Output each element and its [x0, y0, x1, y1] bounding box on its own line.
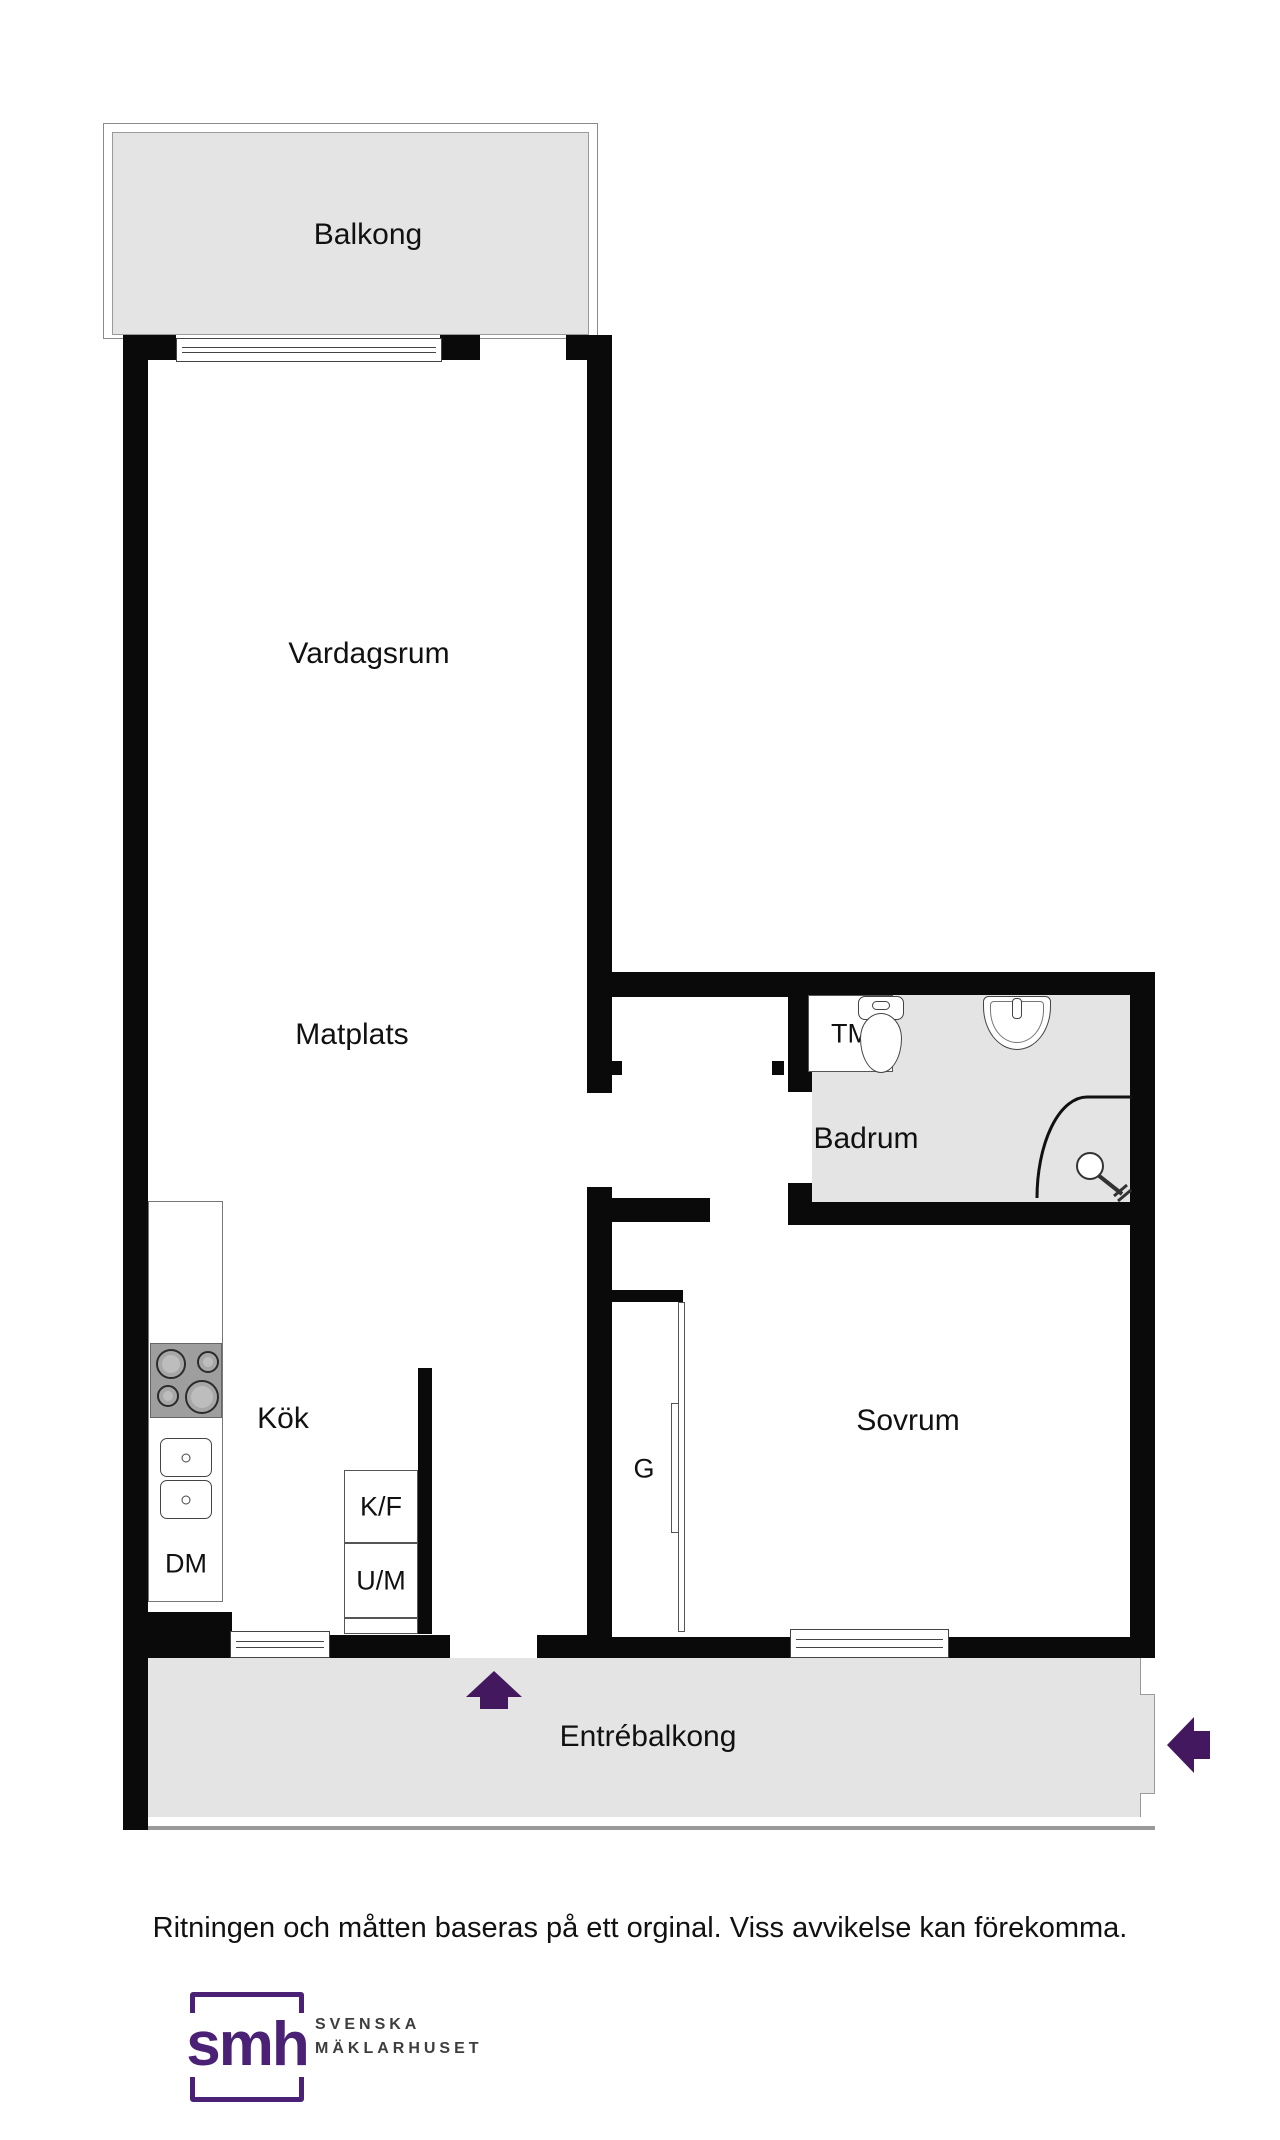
wall-fridge-side	[418, 1368, 432, 1634]
wall-closet-stub	[610, 1290, 683, 1302]
window-pane	[182, 347, 436, 354]
drawer-knob	[182, 1495, 191, 1504]
floor-plan: Balkong TM Badrum	[0, 0, 1280, 2140]
shower-corner-icon	[1030, 1090, 1135, 1205]
burner	[197, 1351, 219, 1373]
wall-bottom-b	[330, 1635, 450, 1658]
balcony-notch	[1140, 1658, 1155, 1695]
wardrobe-front-line	[678, 1302, 685, 1632]
room-label-matplats: Matplats	[295, 1018, 408, 1052]
kitchen-drawer	[160, 1480, 212, 1519]
wall-bottom-a	[123, 1612, 232, 1658]
smh-logo-monogram: smh	[185, 2013, 309, 2077]
room-label-balkong: Balkong	[314, 218, 422, 252]
burner	[157, 1385, 179, 1407]
oven-micro-label: U/M	[356, 1565, 406, 1596]
disclaimer-text: Ritningen och måtten baseras på ett orgi…	[0, 1912, 1280, 1945]
wall-bottom-d	[610, 1637, 790, 1658]
fridge-freezer-box: K/F	[344, 1470, 418, 1543]
window-pane	[796, 1639, 943, 1647]
sink-faucet	[1012, 998, 1022, 1019]
wall-bathroom-top	[587, 972, 1155, 997]
wall-right-exterior	[1130, 972, 1155, 1658]
wall-top-corner	[123, 335, 176, 360]
cabinet-box	[344, 1618, 418, 1634]
room-label-kok: Kök	[257, 1402, 309, 1436]
balcony-notch	[1140, 1793, 1155, 1817]
toilet-flush-button	[872, 1001, 890, 1010]
bedroom-window	[790, 1629, 949, 1658]
balcony-railing-line	[148, 1826, 1155, 1830]
livingroom-window	[176, 338, 442, 362]
fridge-freezer-label: K/F	[360, 1491, 402, 1522]
room-label-entrebalkong: Entrébalkong	[560, 1720, 737, 1754]
wall-bottom-c	[537, 1635, 612, 1658]
room-label-vardagsrum: Vardagsrum	[288, 637, 449, 671]
kitchen-drawer	[160, 1438, 212, 1477]
window-pane	[236, 1641, 324, 1649]
wall-bedroom-top-left	[610, 1198, 710, 1222]
left-arrow-entrance-stem	[1193, 1731, 1210, 1759]
dishwasher-label: DM	[165, 1549, 207, 1580]
oven-micro-box: U/M	[344, 1543, 418, 1618]
left-arrow-entrance-icon	[1167, 1717, 1194, 1773]
up-arrow-entrance-icon	[466, 1671, 522, 1697]
kitchen-window	[230, 1631, 330, 1658]
wall-top-mid	[440, 335, 480, 360]
wall-bottom-e	[949, 1637, 1155, 1658]
wall-hall-lower	[587, 1187, 612, 1658]
room-label-sovrum: Sovrum	[856, 1404, 959, 1438]
wall-jamb-hall	[610, 1061, 622, 1075]
wall-left-exterior	[123, 335, 148, 1830]
logo-word-maklarhuset: MÄKLARHUSET	[315, 2040, 483, 2058]
room-label-badrum: Badrum	[813, 1122, 918, 1156]
smh-logo: smh	[190, 1992, 304, 2102]
logo-word-svenska: SVENSKA	[315, 2016, 420, 2034]
burner	[185, 1380, 219, 1414]
wardrobe-sliding-door	[671, 1403, 679, 1533]
up-arrow-entrance-stem	[480, 1696, 508, 1709]
stove-burners-icon	[150, 1343, 222, 1418]
burner	[156, 1349, 186, 1379]
wardrobe-label: G	[633, 1454, 654, 1485]
wall-jamb-bathroom	[772, 1061, 784, 1075]
drawer-knob	[182, 1453, 191, 1462]
